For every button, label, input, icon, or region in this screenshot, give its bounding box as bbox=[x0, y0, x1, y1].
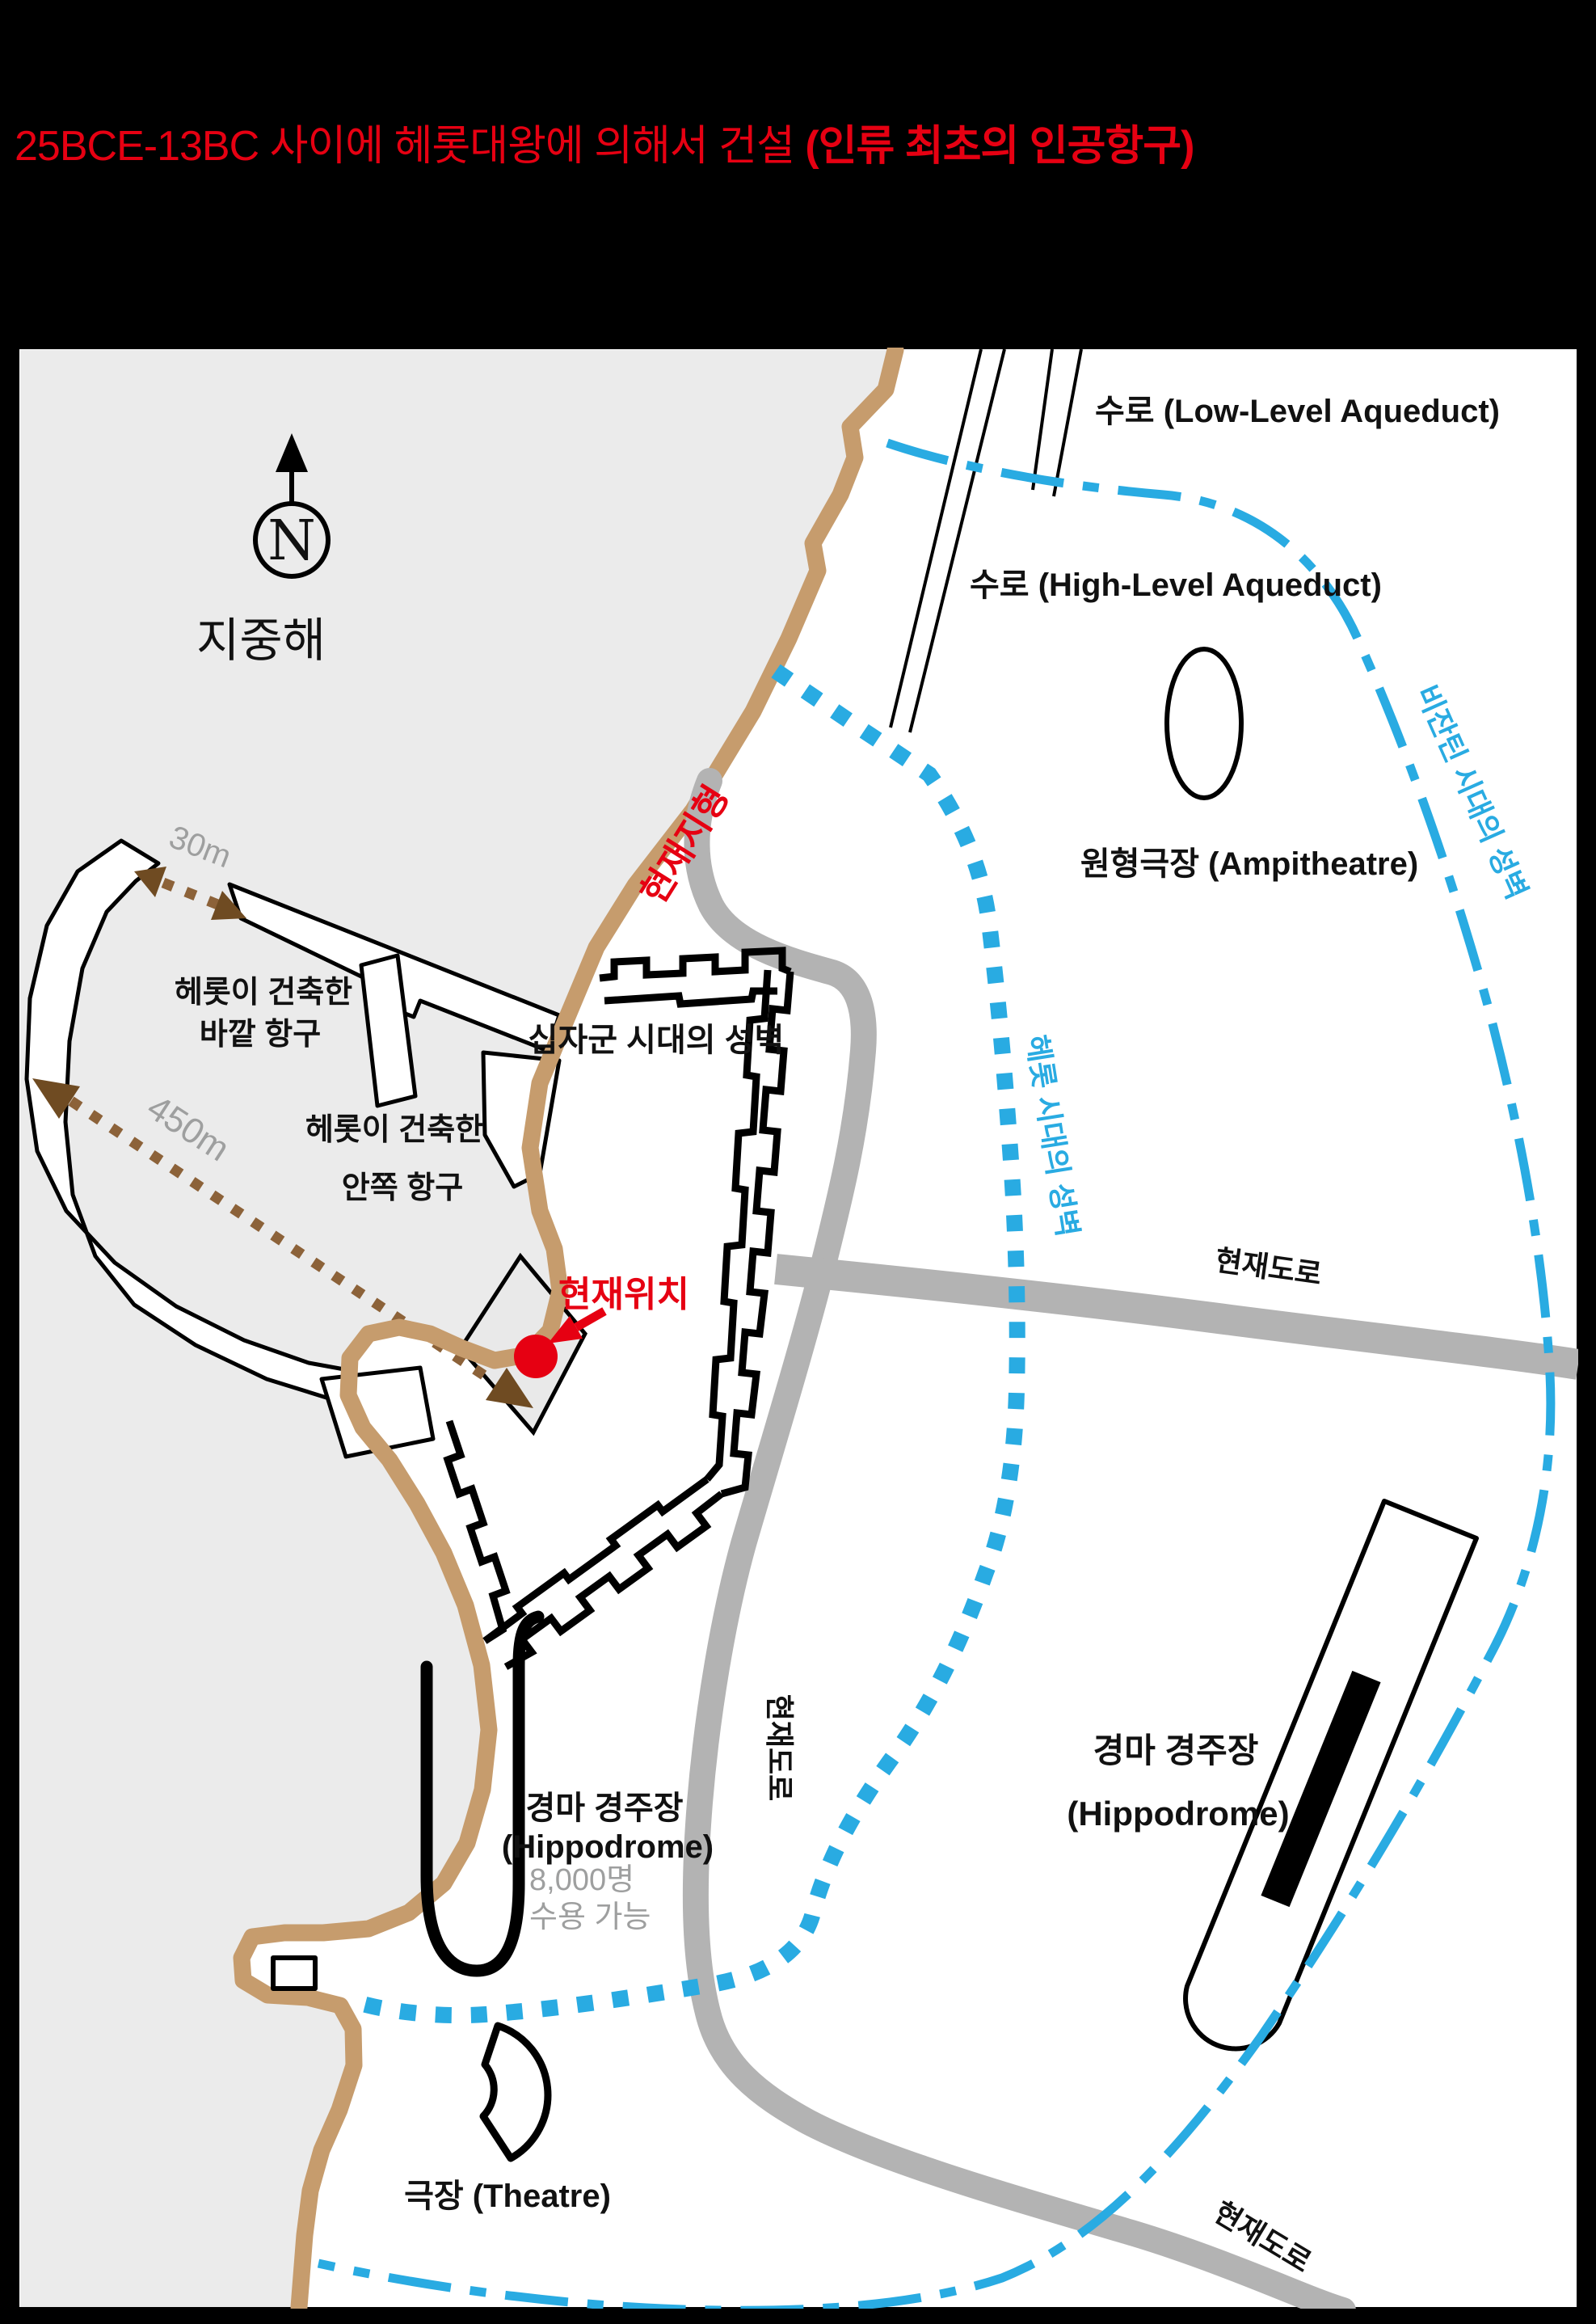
hippodrome-east-label-ko: 경마 경주장 bbox=[1093, 1731, 1259, 1769]
amphitheatre-shape bbox=[1167, 649, 1241, 798]
hippodrome-capacity-line2: 수용 가능 bbox=[529, 1900, 651, 1934]
hippodrome-capacity-line1: 8,000명 bbox=[529, 1863, 634, 1897]
north-letter: N bbox=[267, 509, 316, 573]
harbor-map: N 지중해 수로 (Low-Level Aqueduct) 수로 (High-L… bbox=[0, 0, 1596, 2324]
outer-harbor-label-line2: 바깥 항구 bbox=[200, 1018, 321, 1052]
page: 25BCE-13BC 사이에 헤롯대왕에 의해서 건설 (인류 최초의 인공항구… bbox=[0, 0, 1596, 2324]
modern-road-label-vertical: 현재도로 bbox=[763, 1694, 796, 1801]
hippodrome-east-label-en: (Hippodrome) bbox=[1067, 1795, 1289, 1833]
inner-harbor-label-line1: 헤롯이 건축한 bbox=[305, 1113, 483, 1147]
coastal-structure bbox=[273, 1958, 315, 1989]
aqueduct-low-label: 수로 (Low-Level Aqueduct) bbox=[1095, 394, 1500, 429]
aqueduct-high-label: 수로 (High-Level Aqueduct) bbox=[970, 567, 1382, 603]
hippodrome-west-label-ko: 경마 경주장 bbox=[525, 1790, 683, 1826]
inner-harbor-label-line2: 안쪽 항구 bbox=[342, 1171, 463, 1205]
current-location-label: 현재위치 bbox=[558, 1275, 689, 1314]
outer-harbor-label-line1: 헤롯이 건축한 bbox=[175, 976, 352, 1010]
amphitheatre-label: 원형극장 (Ampitheatre) bbox=[1080, 846, 1418, 882]
crusader-wall-label: 십자군 시대의 성벽 bbox=[528, 1023, 785, 1058]
sea-label: 지중해 bbox=[196, 613, 326, 668]
hippodrome-west-label-en: (Hippodrome) bbox=[502, 1829, 714, 1865]
theatre-label: 극장 (Theatre) bbox=[404, 2178, 611, 2214]
current-location-marker bbox=[514, 1335, 558, 1378]
